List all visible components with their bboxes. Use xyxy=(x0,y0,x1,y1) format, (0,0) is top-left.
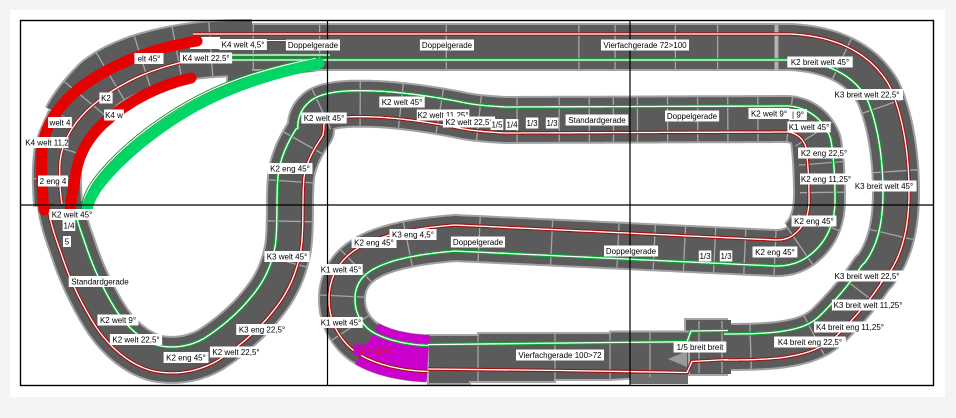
svg-text:K2 welt 45°: K2 welt 45° xyxy=(382,98,423,107)
svg-text:Standardgerade: Standardgerade xyxy=(71,278,129,287)
svg-text:K2 welt 45°: K2 welt 45° xyxy=(304,114,345,123)
svg-text:K2 eng 22,5°: K2 eng 22,5° xyxy=(801,149,847,158)
svg-text:Doppelgerade: Doppelgerade xyxy=(422,41,473,50)
svg-text:Vierfachgerade 100>72: Vierfachgerade 100>72 xyxy=(518,351,602,360)
svg-text:K4 welt 11,2: K4 welt 11,2 xyxy=(25,139,69,148)
svg-text:K3 breit welt 22,5°: K3 breit welt 22,5° xyxy=(834,91,899,100)
svg-text:1/3: 1/3 xyxy=(546,119,558,128)
svg-text:Vierfachgerade 72>100: Vierfachgerade 72>100 xyxy=(603,41,687,50)
svg-text:K4 w: K4 w xyxy=(105,111,123,120)
svg-text:K2 welt 9°: K2 welt 9° xyxy=(751,110,787,119)
svg-text:welt 4: welt 4 xyxy=(49,119,71,128)
svg-text:K2 welt 22,5°: K2 welt 22,5° xyxy=(212,348,259,357)
svg-text:2 eng 4: 2 eng 4 xyxy=(40,177,67,186)
svg-text:K3 breit welt 22,5°: K3 breit welt 22,5° xyxy=(834,272,899,281)
svg-text:K3 breit welt 45°: K3 breit welt 45° xyxy=(855,182,913,191)
svg-text:Doppelgerade: Doppelgerade xyxy=(288,41,339,50)
svg-text:K2 breit welt 45°: K2 breit welt 45° xyxy=(791,58,849,67)
svg-text:K2 welt 45°: K2 welt 45° xyxy=(52,211,93,220)
svg-text:Doppelgerade: Doppelgerade xyxy=(606,247,657,256)
svg-text:Doppelgerade: Doppelgerade xyxy=(453,238,504,247)
svg-text:K2 eng 45°: K2 eng 45° xyxy=(755,248,795,257)
svg-text:K1 welt 45°: K1 welt 45° xyxy=(789,123,830,132)
svg-text:Standardgerade: Standardgerade xyxy=(568,116,626,125)
svg-text:K2 welt 22,5°: K2 welt 22,5° xyxy=(445,118,492,127)
svg-text:K4 welt 22,5°: K4 welt 22,5° xyxy=(182,54,229,63)
svg-text:1/5 breit breit: 1/5 breit breit xyxy=(677,343,724,352)
svg-text:K4 welt 4,5°: K4 welt 4,5° xyxy=(222,41,265,50)
svg-text:K2 welt 22,5°: K2 welt 22,5° xyxy=(112,336,159,345)
svg-text:K2 eng 45°: K2 eng 45° xyxy=(794,217,834,226)
svg-text:1/5: 1/5 xyxy=(491,121,503,130)
svg-text:K3 breit welt 11,25°: K3 breit welt 11,25° xyxy=(834,301,903,310)
svg-text:5: 5 xyxy=(65,238,70,247)
svg-text:K3 eng 22,5°: K3 eng 22,5° xyxy=(239,326,285,335)
svg-text:K1 welt 45°: K1 welt 45° xyxy=(321,266,362,275)
svg-text:Doppelgerade: Doppelgerade xyxy=(667,112,718,121)
svg-text:1/3: 1/3 xyxy=(526,119,538,128)
svg-text:K2: K2 xyxy=(101,94,111,103)
svg-text:elt 45°: elt 45° xyxy=(138,55,161,64)
svg-text:1/3: 1/3 xyxy=(699,252,711,261)
svg-text:1/3: 1/3 xyxy=(720,252,732,261)
svg-text:K2 eng 45°: K2 eng 45° xyxy=(166,354,206,363)
svg-text:| 9°: | 9° xyxy=(792,111,804,120)
svg-text:K3 eng 4,5°: K3 eng 4,5° xyxy=(392,231,434,240)
svg-text:1/4: 1/4 xyxy=(63,222,75,231)
svg-text:K1 welt 45°: K1 welt 45° xyxy=(321,319,362,328)
svg-text:1/4: 1/4 xyxy=(506,121,518,130)
svg-text:K4 breit eng 11,25°: K4 breit eng 11,25° xyxy=(816,323,884,332)
svg-text:K2 eng 45°: K2 eng 45° xyxy=(356,346,396,355)
svg-text:K4 breit eng 22,5°: K4 breit eng 22,5° xyxy=(778,338,842,347)
svg-text:K2 welt 9°: K2 welt 9° xyxy=(100,316,136,325)
svg-text:K2 eng 11,25°: K2 eng 11,25° xyxy=(801,175,851,184)
svg-text:K2 eng 45°: K2 eng 45° xyxy=(270,165,310,174)
svg-text:K2 eng 45°: K2 eng 45° xyxy=(354,239,394,248)
svg-text:K3 welt 45°: K3 welt 45° xyxy=(267,253,308,262)
